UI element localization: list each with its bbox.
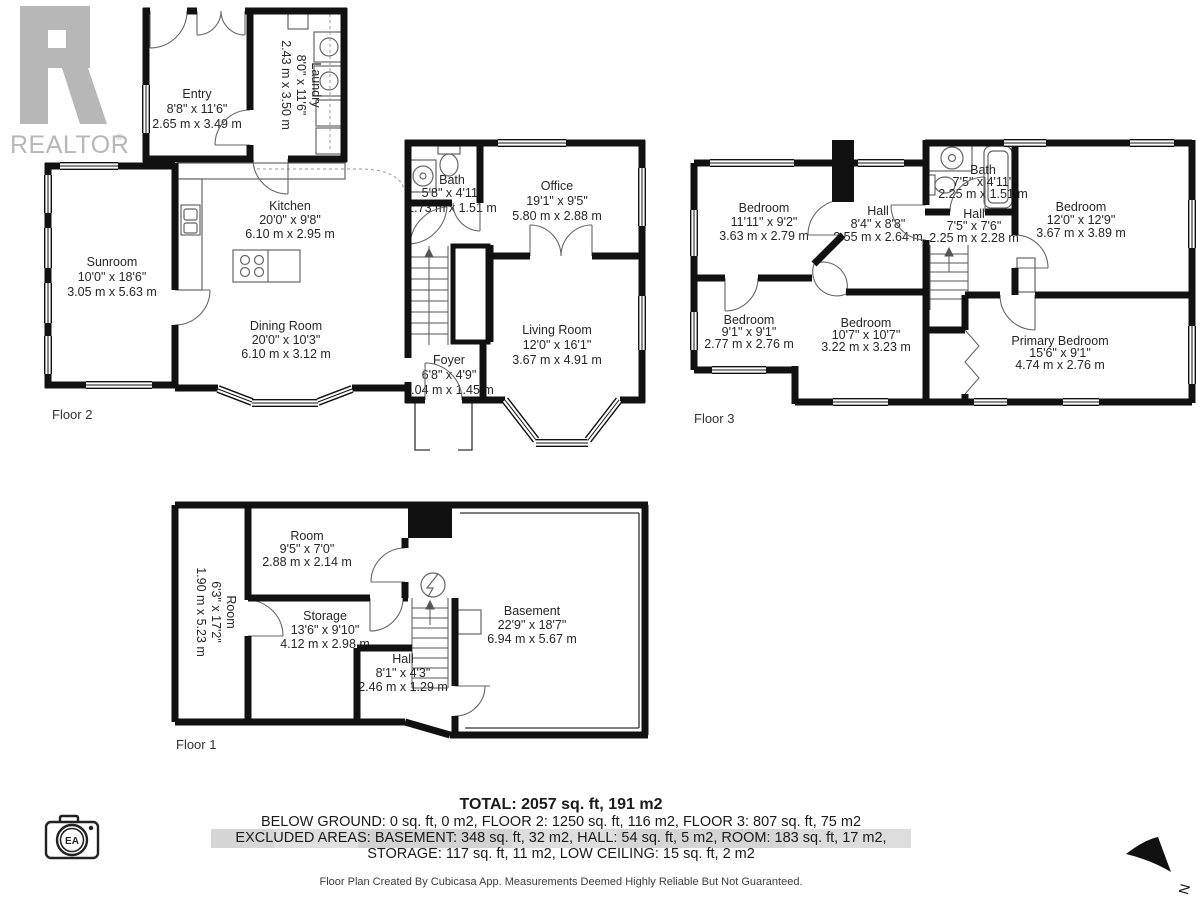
- north-arrow-icon: N: [1118, 828, 1198, 894]
- camera-ea-icon: EA: [36, 806, 116, 878]
- svg-text:2.25 m x 2.28 m: 2.25 m x 2.28 m: [929, 231, 1019, 245]
- floor1-plan: Room 9'5" x 7'0" 2.88 m x 2.14 m Room 6'…: [170, 498, 655, 743]
- svg-text:20'0" x 9'8": 20'0" x 9'8": [259, 213, 321, 227]
- basement-label: Basement 22'9" x 18'7" 6.94 m x 5.67 m: [487, 604, 577, 646]
- svg-text:6.94 m x 5.67 m: 6.94 m x 5.67 m: [487, 632, 577, 646]
- disclaimer-text: Floor Plan Created By Cubicasa App. Meas…: [160, 876, 962, 888]
- sump-pump: [458, 610, 481, 634]
- svg-text:22'9" x 18'7": 22'9" x 18'7": [498, 618, 567, 632]
- svg-text:Room: Room: [224, 595, 238, 628]
- svg-text:10'0" x 18'6": 10'0" x 18'6": [78, 270, 147, 284]
- svg-text:3.05 m x 5.63 m: 3.05 m x 5.63 m: [67, 285, 157, 299]
- svg-text:8'8" x 11'6": 8'8" x 11'6": [167, 102, 228, 116]
- bay-window: [588, 400, 619, 440]
- svg-text:Hall: Hall: [392, 652, 414, 666]
- stair-closet: [453, 246, 488, 342]
- svg-text:Bath: Bath: [439, 173, 465, 187]
- svg-text:Laundry: Laundry: [309, 62, 323, 108]
- bay-window: [505, 400, 536, 440]
- svg-text:13'6" x 9'10": 13'6" x 9'10": [291, 623, 360, 637]
- svg-text:1.90 m x 5.23 m: 1.90 m x 5.23 m: [194, 567, 208, 657]
- svg-text:12'0" x 12'9": 12'0" x 12'9": [1047, 213, 1116, 227]
- floor-areas-text: BELOW GROUND: 0 sq. ft, 0 m2, FLOOR 2: 1…: [160, 814, 962, 830]
- bay-window: [218, 389, 252, 402]
- floor2-label: Floor 2: [52, 407, 92, 422]
- svg-text:6.10 m x 3.12 m: 6.10 m x 3.12 m: [241, 347, 331, 361]
- svg-text:19'1" x 9'5": 19'1" x 9'5": [526, 194, 588, 208]
- svg-text:2.88 m x 2.14 m: 2.88 m x 2.14 m: [262, 555, 352, 569]
- svg-text:5'8" x 4'11": 5'8" x 4'11": [422, 186, 483, 200]
- excluded-areas-text: EXCLUDED AREAS: BASEMENT: 348 sq. ft, 32…: [160, 830, 962, 846]
- north-label: N: [1175, 882, 1193, 896]
- svg-text:8'1" x 4'3": 8'1" x 4'3": [376, 666, 431, 680]
- electrical-panel-icon: [421, 573, 445, 597]
- svg-text:3.67 m x 3.89 m: 3.67 m x 3.89 m: [1036, 226, 1126, 240]
- svg-text:3.63 m x 2.79 m: 3.63 m x 2.79 m: [719, 229, 809, 243]
- total-area-text: TOTAL: 2057 sq. ft, 191 m2: [160, 796, 962, 814]
- office-label: Office 19'1" x 9'5" 5.80 m x 2.88 m: [512, 179, 602, 223]
- svg-text:6'3" x 17'2": 6'3" x 17'2": [209, 581, 223, 643]
- sunroom-label: Sunroom 10'0" x 18'6" 3.05 m x 5.63 m: [67, 255, 157, 299]
- bedroom4-label: Bedroom 10'7" x 10'7" 3.22 m x 3.23 m: [821, 316, 911, 354]
- storage-label: Storage 13'6" x 9'10" 4.12 m x 2.98 m: [280, 609, 370, 651]
- closet: [1017, 258, 1035, 292]
- svg-text:Dining Room: Dining Room: [250, 319, 322, 333]
- bedroom3-label: Bedroom 9'1" x 9'1" 2.77 m x 2.76 m: [704, 313, 794, 351]
- svg-text:2.43 m x 3.50 m: 2.43 m x 3.50 m: [279, 40, 293, 130]
- bedroom1-label: Bedroom 11'11" x 9'2" 3.63 m x 2.79 m: [719, 201, 809, 243]
- svg-text:2.55 m x 2.64 m: 2.55 m x 2.64 m: [833, 230, 923, 244]
- svg-text:Office: Office: [541, 179, 573, 193]
- room-top-label: Room 9'5" x 7'0" 2.88 m x 2.14 m: [262, 529, 352, 569]
- svg-text:2.77 m x 2.76 m: 2.77 m x 2.76 m: [704, 337, 794, 351]
- dining-room-label: Dining Room 20'0" x 10'3" 6.10 m x 3.12 …: [241, 319, 331, 361]
- camera-badge-text: EA: [65, 836, 79, 847]
- svg-text:3.22 m x 3.23 m: 3.22 m x 3.23 m: [821, 340, 911, 354]
- floor2-plan: Entry 8'8" x 11'6" 2.65 m x 3.49 m Laund…: [40, 5, 665, 460]
- floor3-label: Floor 3: [694, 411, 734, 426]
- hall1-label: Hall 8'4" x 8'8" 2.55 m x 2.64 m: [833, 204, 923, 244]
- svg-text:2.65 m x 3.49 m: 2.65 m x 3.49 m: [152, 117, 242, 131]
- svg-text:Storage: Storage: [303, 609, 347, 623]
- svg-text:2.46 m x 1.29 m: 2.46 m x 1.29 m: [358, 680, 448, 694]
- chimney: [832, 140, 854, 202]
- svg-text:5.80 m x 2.88 m: 5.80 m x 2.88 m: [512, 209, 602, 223]
- svg-text:9'5" x 7'0": 9'5" x 7'0": [280, 542, 335, 556]
- svg-text:8'0" x 11'6": 8'0" x 11'6": [294, 55, 308, 116]
- svg-text:Bedroom: Bedroom: [1056, 200, 1107, 214]
- entry-label: Entry 8'8" x 11'6" 2.65 m x 3.49 m: [152, 87, 242, 131]
- kitchen-label: Kitchen 20'0" x 9'8" 6.10 m x 2.95 m: [245, 199, 335, 241]
- svg-text:Hall: Hall: [867, 204, 889, 218]
- area-summary: TOTAL: 2057 sq. ft, 191 m2 BELOW GROUND:…: [160, 796, 962, 888]
- svg-text:Entry: Entry: [182, 87, 212, 101]
- svg-text:Living Room: Living Room: [522, 323, 591, 337]
- room-side-label: Room 6'3" x 17'2" 1.90 m x 5.23 m: [194, 567, 238, 657]
- porch: [415, 403, 472, 450]
- floor1-label: Floor 1: [176, 737, 216, 752]
- storage-areas-text: STORAGE: 117 sq. ft, 11 m2, LOW CEILING:…: [160, 846, 962, 862]
- floor3-plan: Bedroom 11'11" x 9'2" 3.63 m x 2.79 m Ha…: [688, 133, 1195, 413]
- chimney: [408, 505, 452, 538]
- svg-text:4.74 m x 2.76 m: 4.74 m x 2.76 m: [1015, 358, 1105, 372]
- living-room-label: Living Room 12'0" x 16'1" 3.67 m x 4.91 …: [512, 323, 602, 367]
- stove-icon: [233, 250, 300, 282]
- svg-text:Sunroom: Sunroom: [87, 255, 138, 269]
- bay-window: [318, 389, 352, 402]
- svg-text:3.67 m x 4.91 m: 3.67 m x 4.91 m: [512, 353, 602, 367]
- svg-text:Room: Room: [290, 529, 323, 543]
- floor-plan-page: { "branding": { "realtor_text": "REALTOR…: [0, 0, 1200, 900]
- stairs-floor2: [410, 246, 448, 345]
- bedroom2-label: Bedroom 12'0" x 12'9" 3.67 m x 3.89 m: [1036, 200, 1126, 240]
- svg-text:6.10 m x 2.95 m: 6.10 m x 2.95 m: [245, 227, 335, 241]
- svg-text:Bedroom: Bedroom: [739, 201, 790, 215]
- svg-text:6'8" x 4'9": 6'8" x 4'9": [422, 368, 477, 382]
- svg-text:12'0" x 16'1": 12'0" x 16'1": [523, 338, 592, 352]
- bifold-door: [965, 330, 979, 394]
- svg-text:Basement: Basement: [504, 604, 561, 618]
- svg-text:11'11" x 9'2": 11'11" x 9'2": [731, 215, 798, 229]
- svg-text:20'0" x 10'3": 20'0" x 10'3": [252, 333, 321, 347]
- primary-bedroom-label: Primary Bedroom 15'6" x 9'1" 4.74 m x 2.…: [1011, 334, 1108, 372]
- svg-text:Kitchen: Kitchen: [269, 199, 311, 213]
